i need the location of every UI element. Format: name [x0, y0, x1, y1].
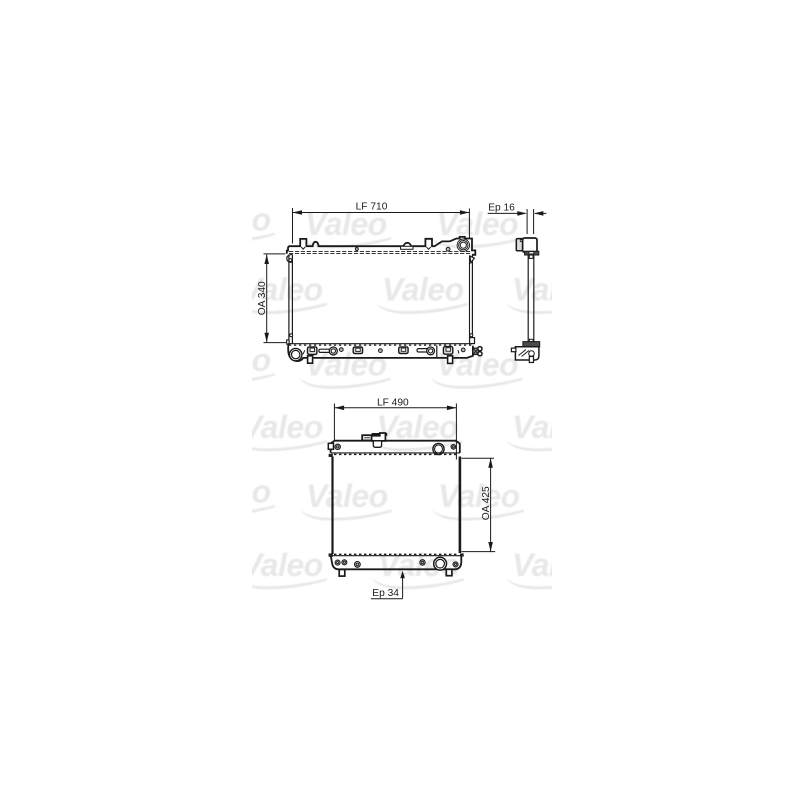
svg-text:Ep 16: Ep 16 — [488, 203, 515, 214]
svg-text:OA 425: OA 425 — [481, 486, 492, 520]
svg-text:Ep 34: Ep 34 — [372, 588, 399, 599]
svg-text:LF 490: LF 490 — [377, 398, 409, 409]
svg-text:OA 340: OA 340 — [257, 281, 268, 315]
svg-text:LF 710: LF 710 — [356, 202, 388, 213]
